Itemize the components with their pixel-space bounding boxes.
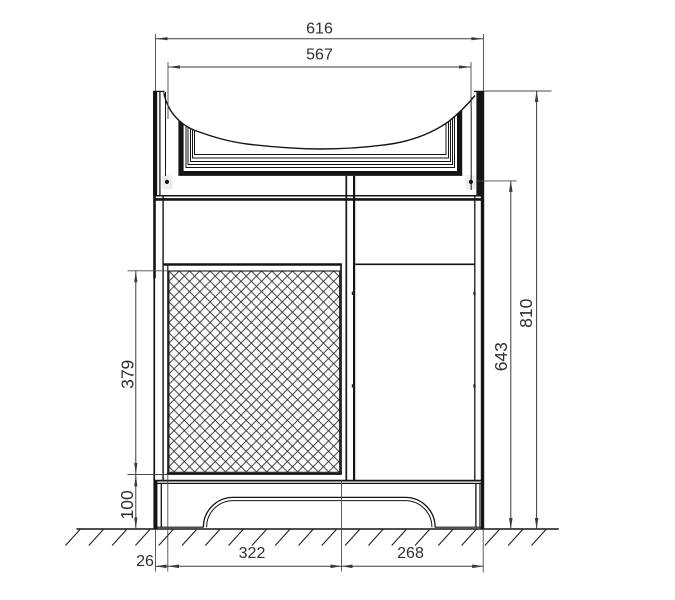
svg-text:810: 810 [516,298,536,327]
svg-text:567: 567 [306,46,333,63]
svg-text:268: 268 [397,545,424,562]
svg-text:322: 322 [239,545,266,562]
svg-text:100: 100 [117,490,137,519]
svg-text:616: 616 [306,21,333,38]
svg-text:643: 643 [491,342,511,371]
svg-text:26: 26 [136,553,154,570]
svg-text:379: 379 [118,360,138,389]
